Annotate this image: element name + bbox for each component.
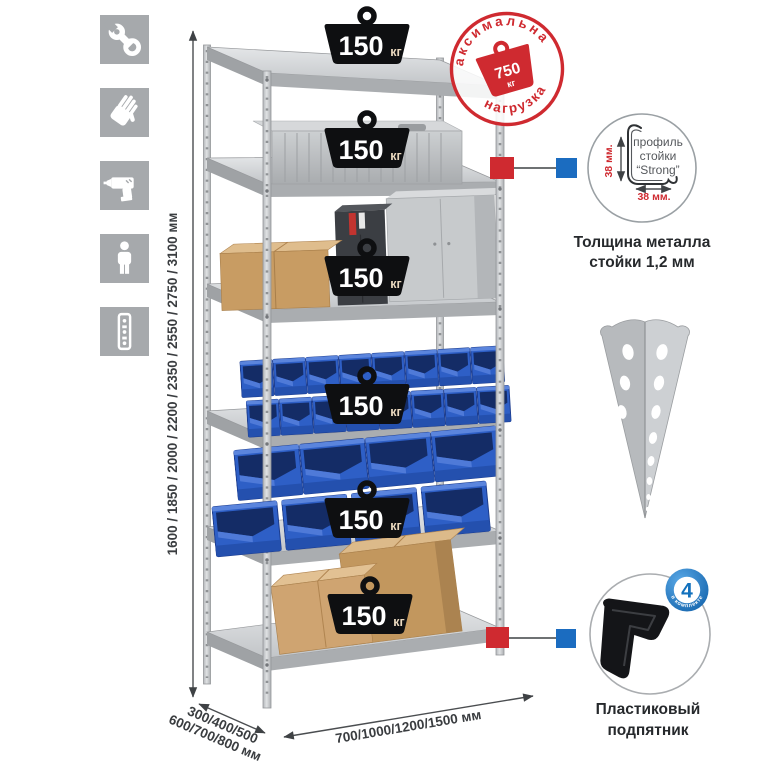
main-illustration: 1600 / 1850 / 2000 / 2200 / 2350 / 2550 … [0, 0, 765, 765]
product-infographic: 1600 / 1850 / 2000 / 2200 / 2350 / 2550 … [0, 0, 765, 765]
foot-caption-2: подпятник [607, 722, 688, 739]
profile-dim-horizontal: 38 мм. [637, 191, 670, 203]
profile-caption-1: Толщина металла [574, 234, 711, 251]
profile-label-1: профиль [633, 135, 683, 149]
profile-label-2: стойки [640, 149, 677, 163]
load-unit: кг [390, 405, 401, 419]
upright-profile-image [600, 320, 689, 518]
rack-post-back-left [204, 45, 211, 684]
callout-red-square-top [490, 157, 514, 179]
rack-post-front-left [263, 71, 271, 708]
load-value: 150 [341, 601, 386, 631]
depth-dimension: 300/400/500 600/700/800 мм [167, 698, 270, 764]
height-dimension: 1600 / 1850 / 2000 / 2200 / 2350 / 2550 … [165, 31, 193, 697]
callout-red-square-bottom [486, 627, 509, 648]
load-unit: кг [390, 149, 401, 163]
load-value: 150 [338, 505, 383, 535]
load-value: 150 [338, 135, 383, 165]
callout-blue-square-bottom [556, 629, 576, 648]
load-unit: кг [390, 277, 401, 291]
height-dimension-label: 1600 / 1850 / 2000 / 2200 / 2350 / 2550 … [165, 213, 180, 556]
load-unit: кг [390, 45, 401, 59]
load-unit: кг [390, 519, 401, 533]
callout-bottom [486, 627, 576, 648]
width-dimension: 700/1000/1200/1500 мм [284, 696, 533, 746]
foot-detail: 4 в комплекте Пластиковый подпятник [590, 569, 710, 740]
load-badge-1: 150 кг [325, 9, 410, 64]
cardboard-box-shelf3 [220, 240, 344, 310]
profile-caption-2: стойки 1,2 мм [589, 254, 694, 271]
load-value: 150 [338, 31, 383, 61]
callout-top [490, 157, 577, 179]
kit-count-value: 4 [681, 580, 693, 603]
kit-count-badge: 4 в комплекте [666, 569, 709, 612]
large-bin-front-left [212, 501, 281, 557]
foot-caption-1: Пластиковый [596, 701, 701, 718]
profile-label-3: “Strong” [636, 163, 679, 177]
profile-dim-vertical: 38 мм. [603, 144, 615, 177]
load-value: 150 [338, 391, 383, 421]
callout-blue-square-top [556, 158, 577, 178]
max-load-stamp: максимальная нагрузка 750 кг [438, 0, 575, 138]
metal-cabinet [386, 188, 508, 302]
load-unit: кг [393, 615, 404, 629]
load-value: 150 [338, 263, 383, 293]
profile-detail: 38 мм. 38 мм. профиль стойки “Strong” То… [574, 114, 711, 271]
width-dimension-label: 700/1000/1200/1500 мм [334, 707, 482, 746]
